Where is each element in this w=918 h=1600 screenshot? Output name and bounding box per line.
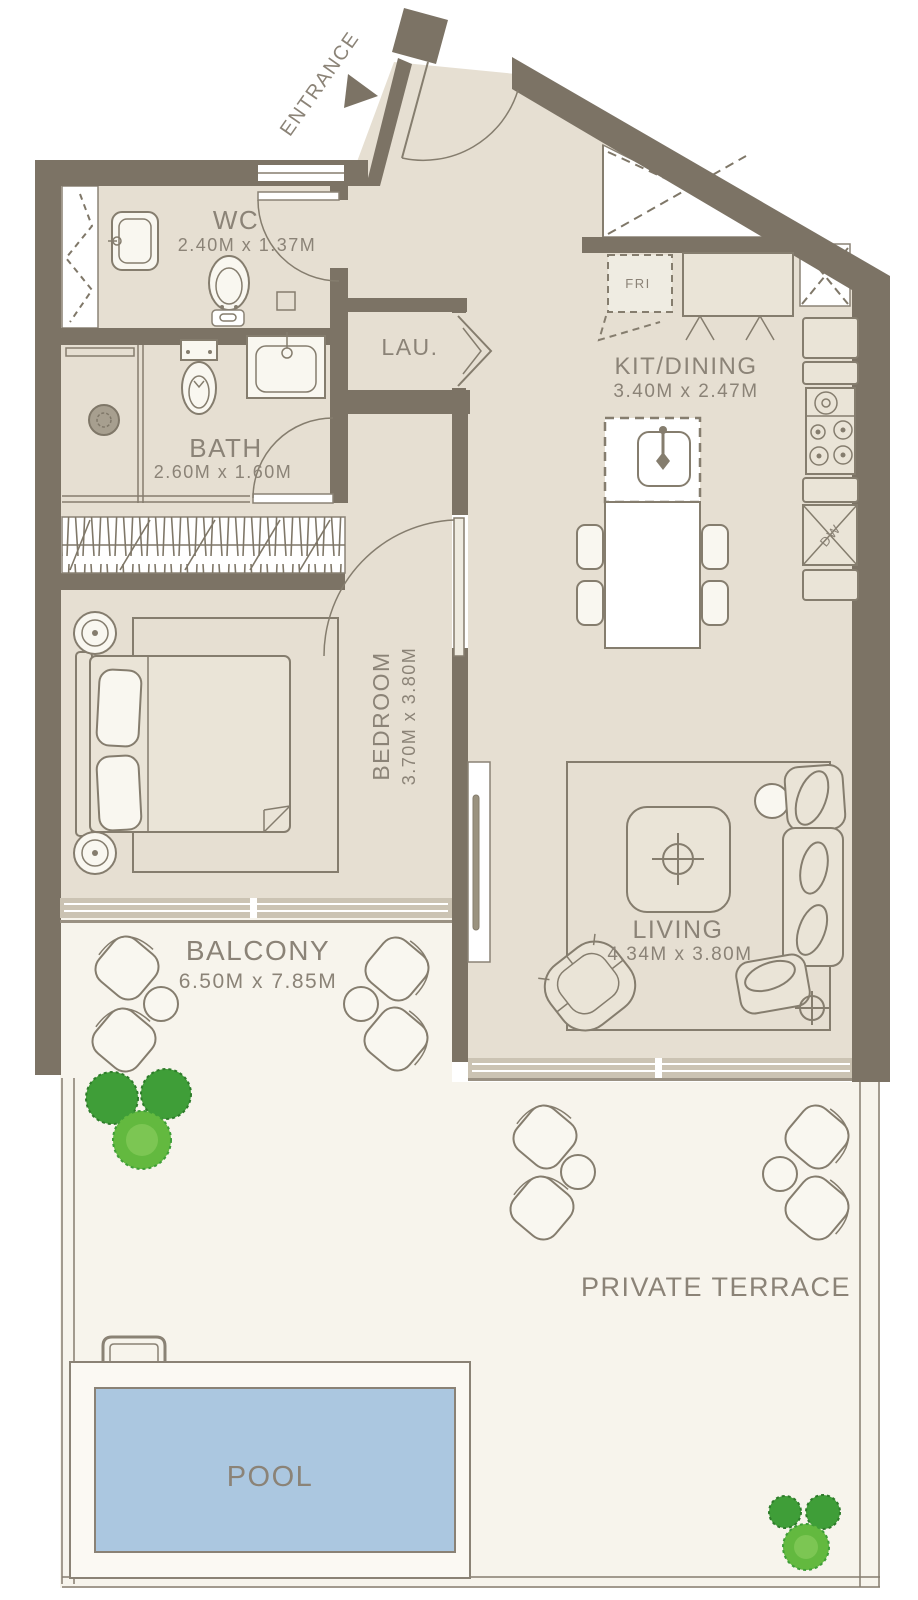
tv-console <box>468 762 490 962</box>
entrance-annotation: ENTRANCE <box>276 28 378 141</box>
bedroom-name: BEDROOM <box>368 651 394 780</box>
balcony-dims: 6.50M x 7.85M <box>179 970 337 993</box>
bed-icon <box>76 652 290 836</box>
island-sink-icon <box>605 418 700 502</box>
outdoor-table <box>144 987 178 1021</box>
room-label-bedroom: BEDROOM 3.70M x 3.80M <box>368 647 419 786</box>
outdoor-table <box>763 1157 797 1191</box>
bath-name: BATH <box>189 433 262 463</box>
fridge-label: FRI <box>625 276 650 291</box>
room-label-kitchen: KIT/DINING 3.40M x 2.47M <box>613 353 758 402</box>
coffee-table-icon <box>627 807 730 912</box>
balcony-name: BALCONY <box>186 935 330 966</box>
wc-basin-icon <box>108 212 158 270</box>
pool-area <box>70 1337 470 1578</box>
bedroom-dims: 3.70M x 3.80M <box>399 647 419 786</box>
dishwasher-box: DW <box>803 505 857 565</box>
bath-dims: 2.60M x 1.60M <box>154 462 293 482</box>
dining-chair <box>702 525 728 569</box>
floor-plan: DW <box>0 0 918 1600</box>
kitchen-name: KIT/DINING <box>614 353 757 380</box>
living-dims: 4.34M x 3.80M <box>607 944 752 965</box>
entrance-arrow-icon <box>344 74 378 108</box>
living-name: LIVING <box>633 916 724 944</box>
outdoor-table <box>561 1155 595 1189</box>
nightstand-icon <box>74 612 116 654</box>
laundry-name: LAU. <box>381 334 438 360</box>
dining-chair <box>577 525 603 569</box>
pool-name: POOL <box>227 1461 314 1493</box>
nightstand-icon <box>74 832 116 874</box>
wc-name: WC <box>213 205 259 235</box>
terrace-name: PRIVATE TERRACE <box>581 1272 851 1302</box>
vanity-sink-icon <box>247 332 325 398</box>
outdoor-table <box>344 987 378 1021</box>
room-label-balcony: BALCONY 6.50M x 7.85M <box>179 935 337 993</box>
wc-dims: 2.40M x 1.37M <box>178 235 317 255</box>
dining-chair <box>702 581 728 625</box>
bath-toilet-icon <box>181 340 217 414</box>
living-sliding-door <box>468 1058 852 1081</box>
floor-plan-drawing: DW <box>0 0 918 1600</box>
side-table-icon <box>755 784 789 818</box>
wardrobe-icon <box>62 517 345 573</box>
closet-shaft-icon <box>62 186 98 328</box>
kitchen-dims: 3.40M x 2.47M <box>613 381 758 402</box>
stove-icon <box>806 388 855 474</box>
dining-chair <box>577 581 603 625</box>
